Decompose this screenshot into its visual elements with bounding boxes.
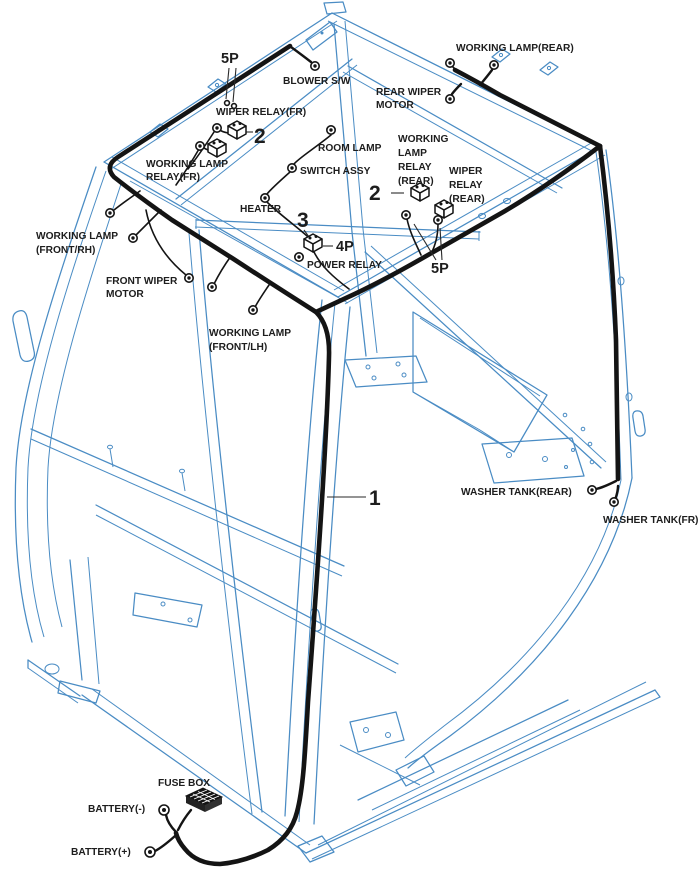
label-room-lamp: ROOM LAMP — [318, 143, 382, 154]
working-lamp-rear-connector-icon — [490, 61, 498, 69]
label-working-lamp-relay-rear: (REAR) — [398, 176, 434, 187]
wiring-diagram-page: 5P BLOWER S/W WIPER RELAY(FR) 2 WORKING … — [0, 0, 700, 879]
switch-assy-connector-icon — [288, 164, 296, 172]
label-rear-wiper-motor: REAR WIPER — [376, 87, 442, 98]
heater-connector-icon — [261, 194, 269, 202]
label-wiper-relay-rear: WIPER — [449, 166, 483, 177]
label-working-lamp-relay-rear: WORKING — [398, 134, 448, 145]
label-working-lamp-relay-rear: LAMP — [398, 148, 427, 159]
label-rear-wiper-motor: MOTOR — [376, 100, 414, 111]
label-front-wiper-motor: MOTOR — [106, 289, 144, 300]
battery-pos-terminal-icon — [145, 847, 155, 857]
label-battery-neg: BATTERY(-) — [88, 804, 145, 815]
label-front-wiper-motor: FRONT WIPER — [106, 276, 178, 287]
pin5-front-connector-icon — [225, 101, 230, 106]
blower-switch-connector-icon — [311, 62, 319, 70]
callout-pin5-rear: 5P — [431, 261, 449, 277]
label-working-lamp-relay-rear: RELAY — [398, 162, 432, 173]
room-lamp-connector-icon — [327, 126, 335, 134]
rear-wiper-motor-connector-icon — [446, 95, 454, 103]
callout-num2-front: 2 — [254, 125, 266, 148]
callout-pin4: 4P — [336, 239, 354, 255]
label-wiper-relay-fr: WIPER RELAY(FR) — [216, 107, 306, 118]
label-wiper-relay-rear: (REAR) — [449, 194, 485, 205]
relay-pigtail-connector-icon — [213, 124, 221, 132]
label-blower-sw: BLOWER S/W — [283, 76, 351, 87]
relay-pigtail-connector-icon — [402, 211, 410, 219]
label-power-relay: POWER RELAY — [307, 260, 382, 271]
battery-neg-terminal-icon — [159, 805, 169, 815]
label-battery-pos: BATTERY(+) — [71, 847, 131, 858]
background — [0, 0, 700, 879]
working-lamp-front-rh-connector-icon — [106, 209, 114, 217]
working-lamp-relay-fr-icon — [208, 139, 226, 157]
label-working-lamp-front-rh: WORKING LAMP — [36, 231, 118, 242]
wiper-relay-fr-icon — [228, 121, 246, 139]
front-wiper-motor-connector-icon — [208, 283, 216, 291]
power-relay-connector-icon — [295, 253, 303, 261]
washer-tank-rear-connector-icon — [588, 486, 596, 494]
label-working-lamp-rear: WORKING LAMP(REAR) — [456, 43, 574, 54]
label-working-lamp-relay-fr: WORKING LAMP — [146, 159, 228, 170]
label-switch-assy: SWITCH ASSY — [300, 166, 371, 177]
label-washer-tank-fr: WASHER TANK(FR) — [603, 515, 698, 526]
label-wiper-relay-rear: RELAY — [449, 180, 483, 191]
front-wiper-motor-connector-icon — [185, 274, 193, 282]
callout-num1: 1 — [369, 487, 381, 510]
power-relay-icon — [304, 234, 322, 252]
callout-num2-rear: 2 — [369, 182, 381, 205]
washer-tank-fr-connector-icon — [610, 498, 618, 506]
cab-harness-diagram: 5P BLOWER S/W WIPER RELAY(FR) 2 WORKING … — [0, 0, 700, 879]
working-lamp-front-lh-connector-icon — [249, 306, 257, 314]
callout-pin5-front: 5P — [221, 51, 239, 67]
harness-end-connector-icon — [446, 59, 454, 67]
label-fuse-box: FUSE BOX — [158, 778, 210, 789]
label-working-lamp-front-rh: (FRONT/RH) — [36, 245, 95, 256]
label-working-lamp-relay-fr: RELAY(FR) — [146, 172, 200, 183]
label-working-lamp-front-lh: (FRONT/LH) — [209, 342, 267, 353]
relay-pigtail-connector-icon — [196, 142, 204, 150]
label-heater: HEATER — [240, 204, 282, 215]
working-lamp-front-rh-connector-icon — [129, 234, 137, 242]
callout-num3: 3 — [297, 209, 309, 232]
label-washer-tank-rear: WASHER TANK(REAR) — [461, 487, 572, 498]
label-working-lamp-front-lh: WORKING LAMP — [209, 328, 291, 339]
